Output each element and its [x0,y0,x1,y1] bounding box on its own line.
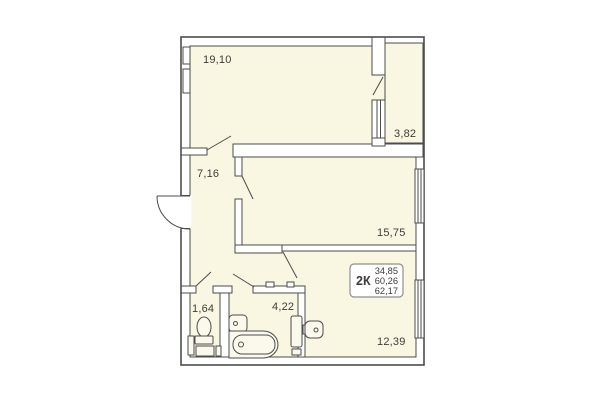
wall-bedroom-left-lower [235,199,242,246]
door-stop-right [287,282,294,287]
room-label-bedroom: 15,75 [377,227,406,239]
wall-balcony-divider [372,37,385,75]
wall-bedroom-left-upper [235,157,242,176]
window-balcony-divider [372,100,385,138]
room-label-hallway: 7,16 [197,168,219,180]
bathtub-symbol [229,331,278,358]
wall-living-hallway [181,148,207,155]
total-area-with-balcony-value: 62,17 [375,286,398,296]
wall-bedroom-bottom-thick [235,245,282,253]
wall-balcony-divider-stub [372,138,385,146]
room-label-bathroom: 4,22 [272,301,294,313]
window-bedroom-right [415,169,424,223]
wall-wc-top-mid [213,286,232,293]
floor-plan: 19,10 3,82 7,16 15,75 1,64 4,22 12,39 2К… [0,0,600,400]
wall-wc-top-left [181,286,196,293]
kitchen-sink-symbol [303,321,323,338]
window-left-large [183,69,190,93]
bathroom-sink-symbol [229,315,247,332]
wall-bath-top [253,286,305,293]
water-heater-symbol [291,316,302,355]
living-area-value: 34,85 [375,266,398,276]
door-stop-left [266,282,274,287]
window-kitchen-right [415,280,424,338]
room-label-living: 19,10 [203,54,232,66]
apartment-type-label: 2К [356,274,371,288]
room-label-balcony: 3,82 [394,128,416,140]
room-label-kitchen: 12,39 [377,336,406,348]
floor-plan-canvas: 19,10 3,82 7,16 15,75 1,64 4,22 12,39 2К… [0,0,600,400]
wall-living-bedroom [233,144,423,157]
wall-bedroom-kitchen [282,245,416,251]
room-label-wc: 1,64 [192,303,214,315]
window-left-small [183,47,190,64]
total-area-value: 60,26 [375,276,398,286]
entrance-opening [180,196,192,229]
info-box: 2К 34,85 60,26 62,17 [350,264,403,297]
